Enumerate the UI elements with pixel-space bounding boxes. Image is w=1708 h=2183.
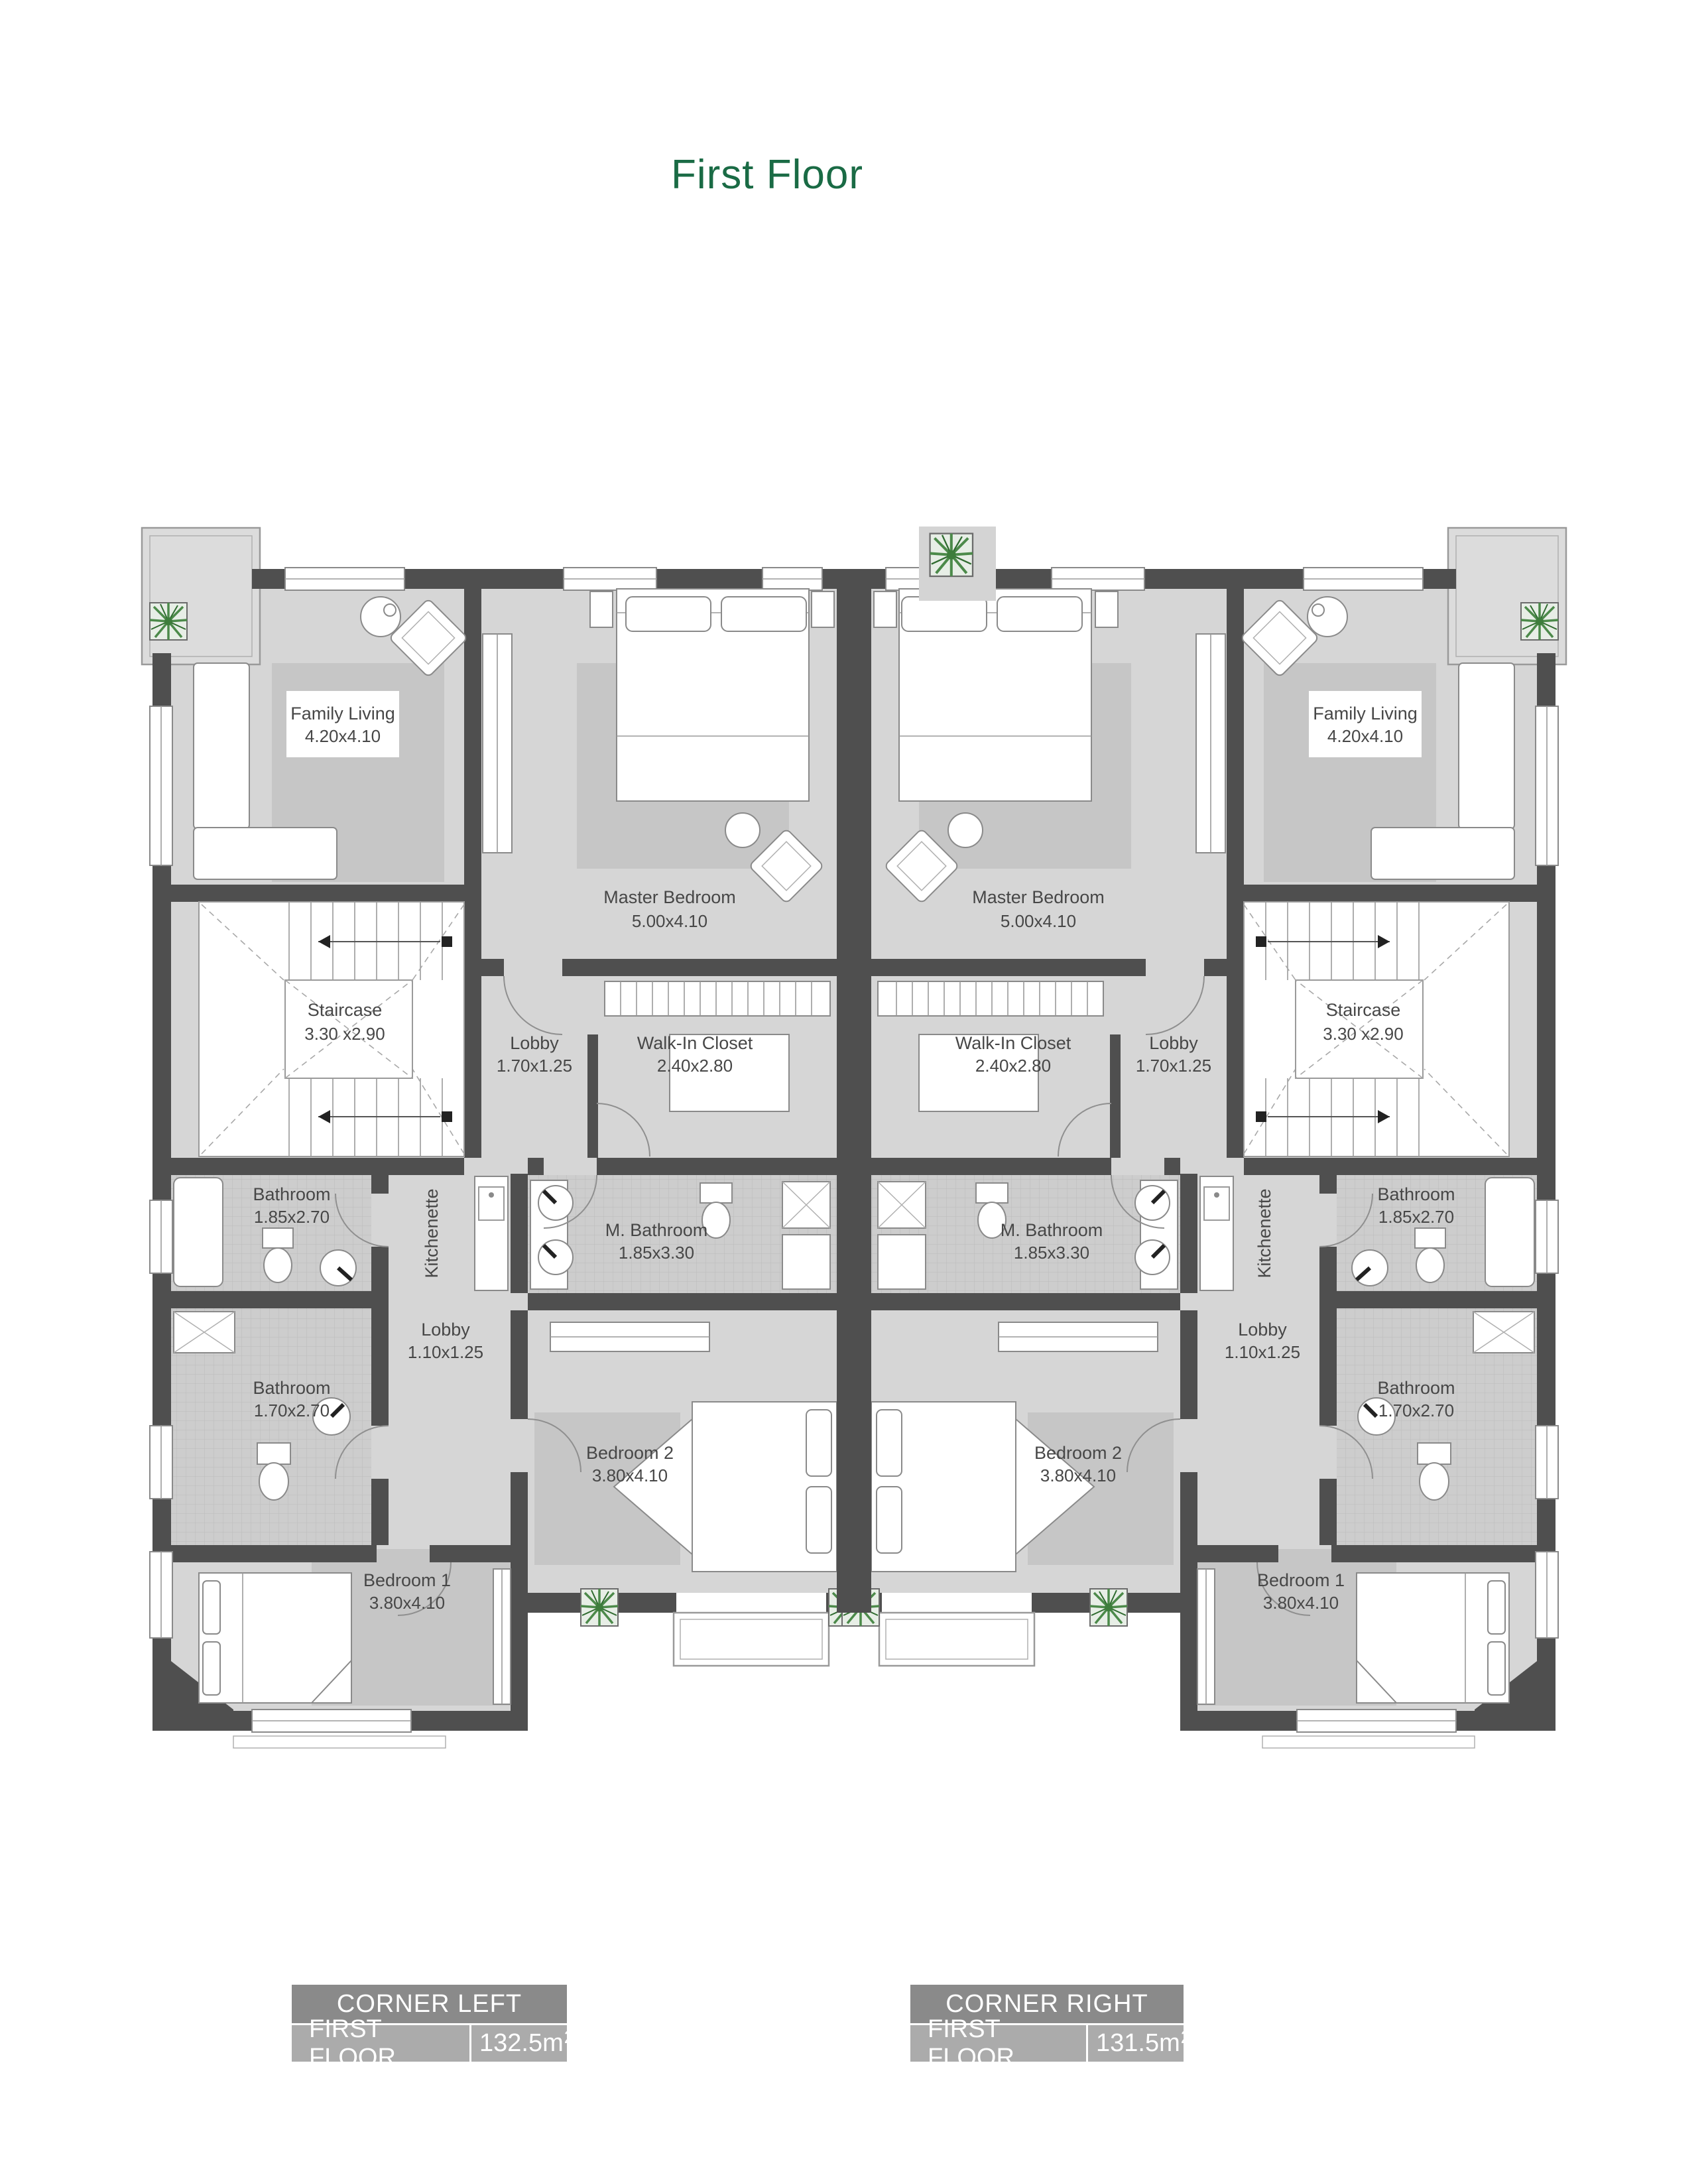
room-dims-bathroom-lower: 1.70x2.70 [254, 1401, 330, 1420]
area-value: 132.5m [479, 2029, 564, 2058]
unit-left-structure [142, 528, 871, 1748]
room-dims-bedroom-2: 3.80x4.10 [592, 1466, 668, 1485]
room-dims-walk-in-closet: 2.40x2.80 [657, 1056, 733, 1076]
legend-left-floor-label: FIRST FLOOR [292, 2025, 469, 2062]
room-dims-bathroom-lower: 1.70x2.70 [1378, 1401, 1454, 1420]
room-label-staircase: Staircase [308, 1000, 383, 1020]
plant-icon [930, 534, 973, 576]
room-label-walk-in-closet: Walk-In Closet [637, 1033, 753, 1053]
room-label-family-living: Family Living [1313, 704, 1418, 723]
room-dims-bedroom-1: 3.80x4.10 [369, 1593, 445, 1613]
plant-icon [150, 603, 187, 640]
room-label-kitchenette: Kitchenette [1254, 1188, 1274, 1278]
room-label-lobby-lower: Lobby [421, 1320, 470, 1340]
room-dims-lobby-lower: 1.10x1.25 [408, 1342, 483, 1362]
room-dims-bathroom-upper: 1.85x2.70 [1378, 1207, 1454, 1227]
legend-right-floor-label: FIRST FLOOR [910, 2025, 1086, 2062]
room-label-kitchenette: Kitchenette [422, 1188, 442, 1278]
area-sup: 2 [1181, 2027, 1191, 2048]
room-dims-lobby-lower: 1.10x1.25 [1225, 1342, 1300, 1362]
room-label-staircase: Staircase [1326, 1000, 1401, 1020]
room-label-bedroom-1: Bedroom 1 [363, 1570, 451, 1590]
room-label-bathroom-lower: Bathroom [253, 1378, 330, 1398]
room-label-master-bedroom: Master Bedroom [603, 887, 736, 907]
room-dims-master-bedroom: 5.00x4.10 [632, 911, 707, 931]
room-label-bedroom-2: Bedroom 2 [1034, 1443, 1122, 1463]
room-label-bathroom-lower: Bathroom [1377, 1378, 1455, 1398]
area-sup: 2 [564, 2027, 574, 2048]
room-dims-family-living: 4.20x4.10 [1327, 726, 1403, 746]
room-dims-lobby-upper: 1.70x1.25 [497, 1056, 572, 1076]
room-label-bathroom-upper: Bathroom [253, 1184, 330, 1204]
legend-left-area: 132.5m2 [471, 2025, 567, 2062]
room-label-walk-in-closet: Walk-In Closet [955, 1033, 1071, 1053]
kitchenette-counter [475, 1176, 508, 1290]
room-dims-lobby-upper: 1.70x1.25 [1136, 1056, 1211, 1076]
area-value: 131.5m [1096, 2029, 1180, 2058]
room-label-bathroom-upper: Bathroom [1377, 1184, 1455, 1204]
balcony [142, 528, 260, 664]
room-label-family-living: Family Living [290, 704, 395, 723]
room-dims-master-bedroom: 5.00x4.10 [1001, 911, 1076, 931]
room-label-bedroom-2: Bedroom 2 [586, 1443, 674, 1463]
porch [674, 1613, 829, 1666]
room-dims-bathroom-upper: 1.85x2.70 [254, 1207, 330, 1227]
legend-right-area: 131.5m2 [1088, 2025, 1184, 2062]
plant-icon [581, 1589, 618, 1626]
room-dims-bedroom-2: 3.80x4.10 [1040, 1466, 1116, 1485]
room-label-bedroom-1: Bedroom 1 [1257, 1570, 1345, 1590]
room-dims-staircase: 3.30 x2.90 [1323, 1024, 1403, 1044]
legend-corner-right: CORNER RIGHT FIRST FLOOR 131.5m2 [910, 1985, 1184, 2062]
room-dims-walk-in-closet: 2.40x2.80 [975, 1056, 1051, 1076]
page: First Floor [0, 0, 1708, 2183]
room-dims-bedroom-1: 3.80x4.10 [1263, 1593, 1339, 1613]
room-label-m-bathroom: M. Bathroom [605, 1220, 708, 1240]
legend-corner-left: CORNER LEFT FIRST FLOOR 132.5m2 [292, 1985, 567, 2062]
room-dims-family-living: 4.20x4.10 [305, 726, 381, 746]
party-wall [837, 569, 871, 1613]
room-dims-staircase: 3.30 x2.90 [304, 1024, 385, 1044]
floor-plan: Family Living 4.20x4.10 Master Bedroom 5… [0, 0, 1708, 2183]
room-label-lobby-lower: Lobby [1238, 1320, 1287, 1340]
room-label-m-bathroom: M. Bathroom [1001, 1220, 1103, 1240]
room-label-master-bedroom: Master Bedroom [972, 887, 1105, 907]
room-label-lobby-upper: Lobby [510, 1033, 559, 1053]
unit-right-structure [837, 528, 1566, 1748]
room-dims-m-bathroom: 1.85x3.30 [1014, 1243, 1089, 1263]
room-label-lobby-upper: Lobby [1149, 1033, 1198, 1053]
room-dims-m-bathroom: 1.85x3.30 [619, 1243, 694, 1263]
